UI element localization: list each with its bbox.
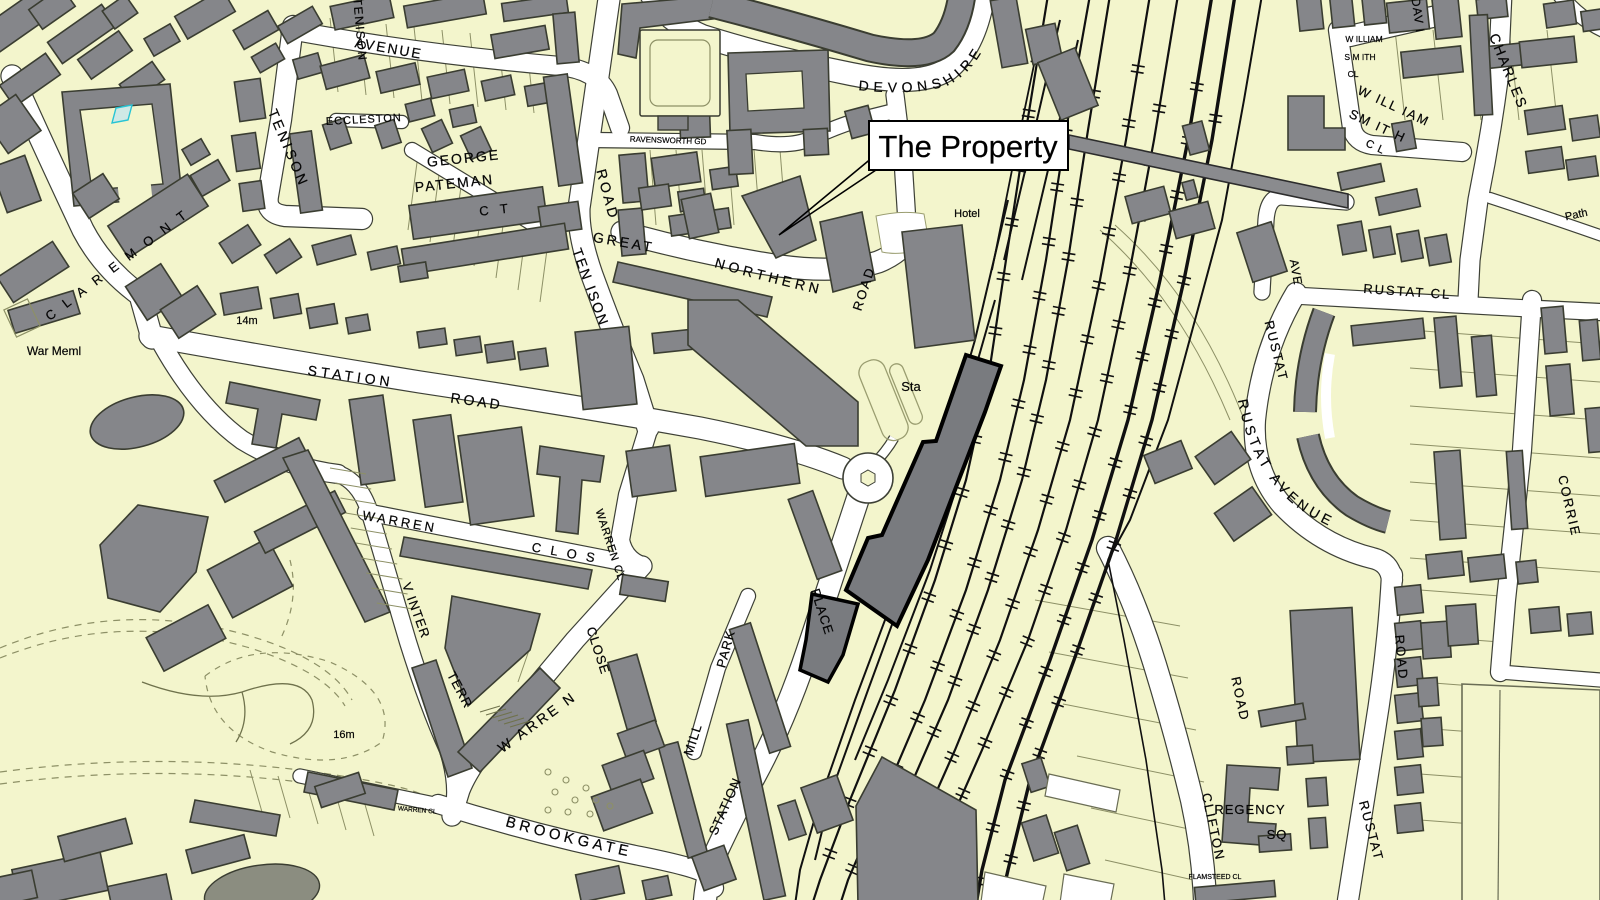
svg-text:Hotel: Hotel bbox=[954, 208, 980, 220]
svg-text:SQ: SQ bbox=[1267, 827, 1288, 842]
svg-text:S M ITH: S M ITH bbox=[1344, 52, 1375, 62]
svg-text:The Property: The Property bbox=[878, 129, 1058, 164]
svg-text:CL: CL bbox=[1348, 69, 1359, 79]
svg-text:War Meml: War Meml bbox=[27, 344, 81, 358]
svg-text:FLAMSTEED CL: FLAMSTEED CL bbox=[1189, 874, 1242, 881]
svg-text:16m: 16m bbox=[333, 729, 354, 741]
svg-text:Sta: Sta bbox=[901, 379, 921, 394]
svg-text:14m: 14m bbox=[236, 315, 257, 327]
svg-text:REGENCY: REGENCY bbox=[1214, 802, 1285, 817]
svg-text:W ILLIAM: W ILLIAM bbox=[1345, 34, 1382, 44]
